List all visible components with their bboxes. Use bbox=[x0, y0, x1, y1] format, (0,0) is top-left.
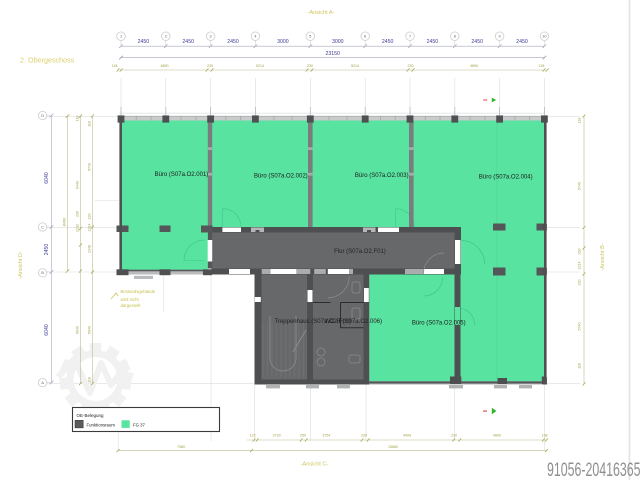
svg-text:8490: 8490 bbox=[62, 218, 66, 226]
svg-text:-Ansicht B-: -Ansicht B- bbox=[600, 243, 606, 270]
svg-text:2450: 2450 bbox=[516, 39, 528, 45]
svg-text:Büro (S07a.O2.002): Büro (S07a.O2.002) bbox=[254, 173, 308, 179]
svg-text:2132: 2132 bbox=[75, 224, 79, 232]
svg-text:6040: 6040 bbox=[44, 172, 50, 184]
svg-text:230: 230 bbox=[207, 64, 213, 68]
svg-text:118: 118 bbox=[578, 118, 582, 124]
svg-text:10: 10 bbox=[542, 35, 546, 39]
svg-text:Flur (S07a.O2.F01): Flur (S07a.O2.F01) bbox=[334, 249, 386, 255]
svg-text:Büro (S07a.O2.001): Büro (S07a.O2.001) bbox=[155, 172, 209, 178]
svg-text:C: C bbox=[41, 225, 44, 229]
svg-text:2450: 2450 bbox=[382, 39, 394, 45]
svg-text:2. Obergeschoss: 2. Obergeschoss bbox=[20, 56, 75, 65]
svg-text:230: 230 bbox=[75, 211, 79, 217]
svg-text:-Ansicht D-: -Ansicht D- bbox=[18, 251, 24, 279]
svg-text:230: 230 bbox=[408, 64, 414, 68]
svg-text:dargestellt: dargestellt bbox=[121, 303, 142, 308]
svg-text:5: 5 bbox=[309, 35, 311, 39]
svg-text:2214: 2214 bbox=[87, 224, 91, 232]
svg-text:2450: 2450 bbox=[227, 39, 239, 45]
svg-text:2: 2 bbox=[165, 35, 167, 39]
svg-text:118: 118 bbox=[539, 64, 545, 68]
svg-text:1348: 1348 bbox=[87, 245, 91, 253]
svg-text:230: 230 bbox=[451, 433, 457, 437]
svg-text:Büro (S07a.O2.003): Büro (S07a.O2.003) bbox=[355, 173, 409, 179]
svg-text:2450: 2450 bbox=[182, 39, 194, 45]
svg-text:OE-Belegung: OE-Belegung bbox=[77, 413, 105, 418]
svg-text:122: 122 bbox=[250, 433, 256, 437]
svg-text:6040: 6040 bbox=[44, 324, 50, 336]
svg-text:118: 118 bbox=[578, 363, 582, 369]
svg-text:5214: 5214 bbox=[256, 64, 264, 68]
svg-text:Bestandsgebäude: Bestandsgebäude bbox=[121, 289, 156, 294]
svg-text:6: 6 bbox=[364, 35, 366, 39]
svg-text:15680: 15680 bbox=[388, 445, 398, 449]
svg-text:3000: 3000 bbox=[277, 39, 289, 45]
svg-text:4: 4 bbox=[254, 35, 256, 39]
svg-text:2450: 2450 bbox=[471, 39, 483, 45]
svg-text:230: 230 bbox=[578, 249, 582, 255]
svg-text:230: 230 bbox=[87, 214, 91, 220]
svg-text:WC-R (S07a.O2.006): WC-R (S07a.O2.006) bbox=[325, 319, 382, 325]
svg-text:250: 250 bbox=[300, 433, 306, 437]
svg-text:-Ansicht C-: -Ansicht C- bbox=[301, 462, 329, 468]
svg-text:3000: 3000 bbox=[332, 39, 344, 45]
svg-text:4890: 4890 bbox=[161, 64, 169, 68]
svg-text:1: 1 bbox=[120, 35, 122, 39]
svg-text:230: 230 bbox=[578, 280, 582, 286]
svg-text:2730: 2730 bbox=[273, 433, 281, 437]
svg-text:118: 118 bbox=[75, 116, 79, 122]
svg-text:5940: 5940 bbox=[87, 326, 91, 334]
svg-text:9: 9 bbox=[499, 35, 501, 39]
svg-text:2450: 2450 bbox=[427, 39, 439, 45]
svg-text:FG 37: FG 37 bbox=[133, 423, 146, 428]
svg-text:2450: 2450 bbox=[138, 39, 150, 45]
svg-text:5740: 5740 bbox=[87, 163, 91, 171]
svg-text:118: 118 bbox=[87, 121, 91, 127]
svg-text:D: D bbox=[41, 114, 44, 118]
svg-text:4890: 4890 bbox=[493, 433, 501, 437]
svg-text:118: 118 bbox=[112, 64, 118, 68]
svg-text:5214: 5214 bbox=[351, 64, 359, 68]
svg-text:230: 230 bbox=[307, 64, 313, 68]
svg-text:2214: 2214 bbox=[578, 262, 582, 270]
svg-text:23150: 23150 bbox=[325, 51, 340, 57]
svg-text:Büro (S07a.O2.004): Büro (S07a.O2.004) bbox=[479, 174, 533, 180]
svg-text:-Ansicht A-: -Ansicht A- bbox=[307, 10, 334, 16]
svg-text:6440: 6440 bbox=[75, 181, 79, 189]
svg-text:5740: 5740 bbox=[578, 182, 582, 190]
svg-text:wird nicht: wird nicht bbox=[121, 297, 140, 302]
svg-text:118: 118 bbox=[87, 377, 91, 383]
svg-text:7580: 7580 bbox=[177, 445, 185, 449]
svg-text:5740: 5740 bbox=[578, 323, 582, 331]
svg-text:230: 230 bbox=[361, 433, 367, 437]
svg-text:4890: 4890 bbox=[470, 64, 478, 68]
svg-text:3: 3 bbox=[210, 35, 212, 39]
svg-text:91056-20416365: 91056-20416365 bbox=[547, 459, 641, 480]
svg-text:3754: 3754 bbox=[322, 433, 330, 437]
svg-text:8: 8 bbox=[454, 35, 456, 39]
svg-text:7: 7 bbox=[409, 35, 411, 39]
svg-text:6040: 6040 bbox=[75, 326, 79, 334]
svg-text:Funktionsraum: Funktionsraum bbox=[87, 423, 116, 428]
svg-text:4494: 4494 bbox=[403, 433, 411, 437]
svg-text:2450: 2450 bbox=[44, 244, 50, 256]
svg-text:138: 138 bbox=[542, 433, 548, 437]
svg-text:Büro (S07a.O2.005): Büro (S07a.O2.005) bbox=[412, 320, 466, 326]
